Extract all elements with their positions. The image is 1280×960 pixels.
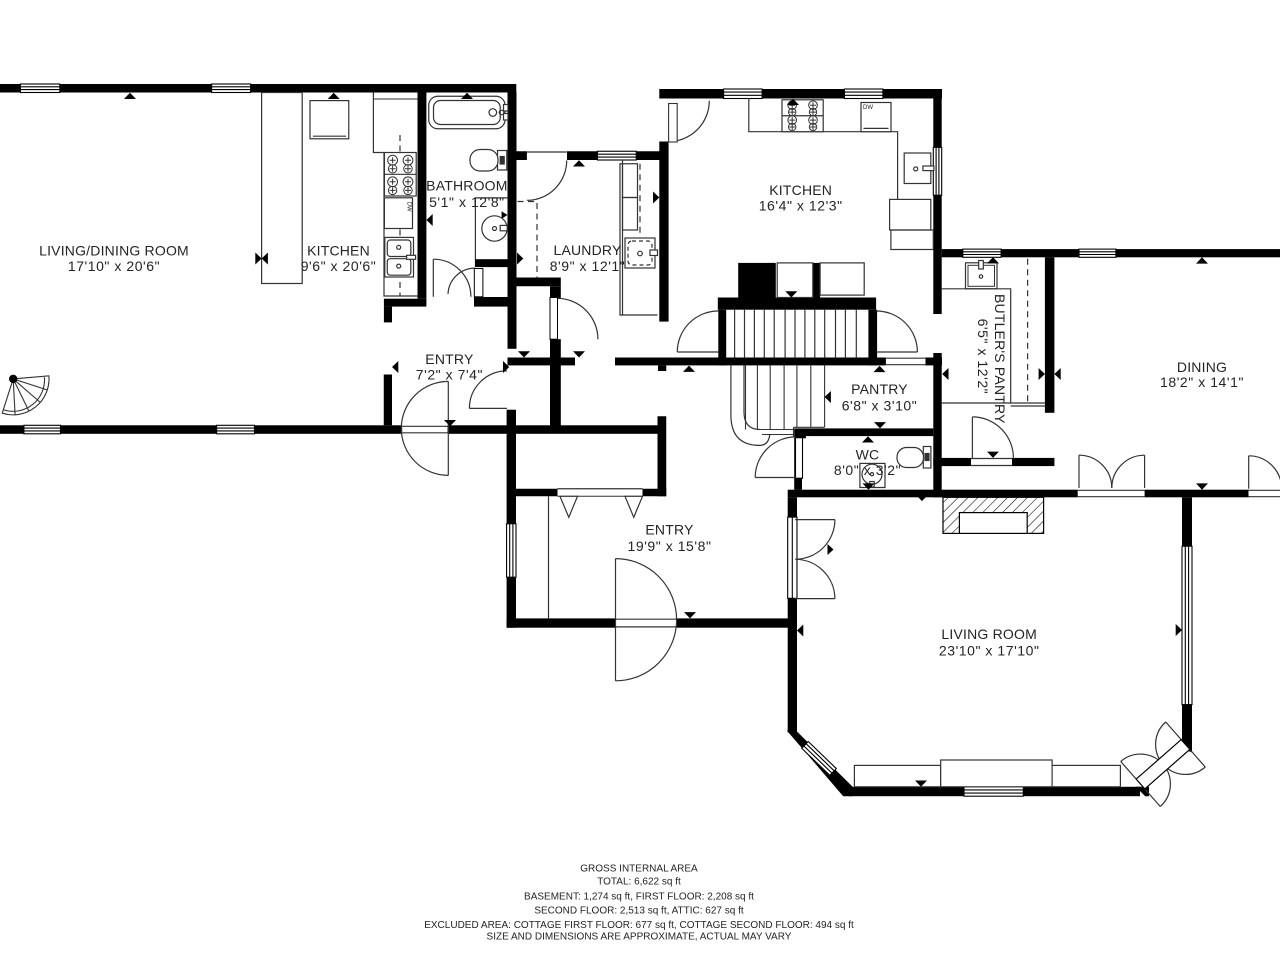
svg-text:8'0" x 3'2": 8'0" x 3'2": [834, 462, 901, 478]
svg-text:GROSS INTERNAL AREA: GROSS INTERNAL AREA: [580, 864, 698, 875]
svg-text:PANTRY: PANTRY: [851, 381, 908, 397]
svg-text:DW: DW: [863, 105, 873, 111]
svg-text:KITCHEN: KITCHEN: [769, 182, 832, 198]
svg-text:ENTRY: ENTRY: [645, 522, 694, 538]
svg-text:ENTRY: ENTRY: [425, 351, 474, 367]
svg-text:LIVING/DINING ROOM: LIVING/DINING ROOM: [39, 243, 189, 259]
svg-text:WC: WC: [856, 447, 880, 463]
svg-text:BUTLER'S PANTRY: BUTLER'S PANTRY: [992, 294, 1008, 424]
svg-text:19'9" x 15'8": 19'9" x 15'8": [628, 538, 712, 554]
svg-text:6'5" x 12'2": 6'5" x 12'2": [975, 319, 991, 395]
svg-text:7'2" x 7'4": 7'2" x 7'4": [416, 367, 483, 383]
svg-text:SECOND FLOOR: 2,513 sq ft, ATT: SECOND FLOOR: 2,513 sq ft, ATTIC: 627 sq…: [534, 906, 744, 917]
svg-text:18'2" x 14'1": 18'2" x 14'1": [1160, 374, 1244, 390]
svg-text:23'10" x 17'10": 23'10" x 17'10": [939, 642, 1040, 658]
svg-text:17'10" x 20'6": 17'10" x 20'6": [68, 258, 160, 274]
svg-text:9'6" x 20'6": 9'6" x 20'6": [301, 258, 377, 274]
svg-text:6'8" x 3'10": 6'8" x 3'10": [842, 398, 918, 414]
svg-text:LIVING ROOM: LIVING ROOM: [941, 626, 1037, 642]
svg-text:16'4" x 12'3": 16'4" x 12'3": [759, 198, 843, 214]
svg-text:DINING: DINING: [1177, 359, 1227, 375]
svg-text:8'9" x 12'1": 8'9" x 12'1": [550, 258, 626, 274]
svg-text:TOTAL: 6,622 sq ft: TOTAL: 6,622 sq ft: [597, 877, 681, 888]
svg-text:DW: DW: [406, 202, 412, 212]
svg-text:5'1" x 12'8": 5'1" x 12'8": [429, 194, 505, 210]
svg-text:BASEMENT: 1,274 sq ft, FIRST F: BASEMENT: 1,274 sq ft, FIRST FLOOR: 2,20…: [524, 892, 754, 903]
svg-text:KITCHEN: KITCHEN: [307, 243, 370, 259]
svg-text:SIZE AND DIMENSIONS ARE APPROX: SIZE AND DIMENSIONS ARE APPROXIMATE, ACT…: [487, 932, 792, 943]
svg-text:LAUNDRY: LAUNDRY: [553, 242, 622, 258]
svg-text:BATHROOM: BATHROOM: [426, 178, 507, 194]
svg-text:EXCLUDED AREA: COTTAGE FIRST F: EXCLUDED AREA: COTTAGE FIRST FLOOR: 677 …: [424, 920, 854, 931]
